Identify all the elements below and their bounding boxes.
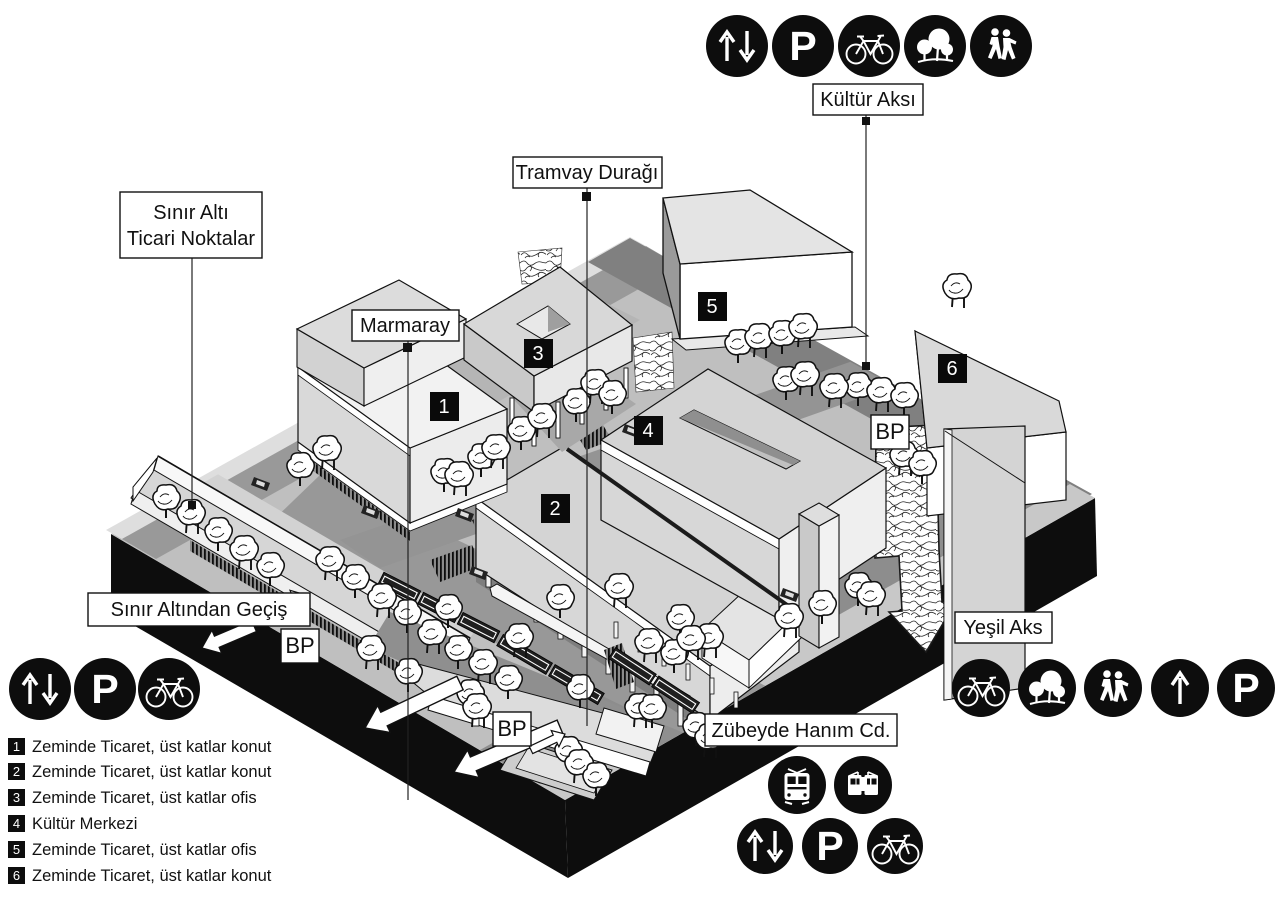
svg-text:2: 2 — [549, 498, 560, 520]
svg-text:Sınır Altı: Sınır Altı — [153, 202, 229, 224]
svg-text:BP: BP — [875, 419, 904, 444]
svg-text:6: 6 — [946, 358, 957, 380]
svg-text:4: 4 — [13, 816, 20, 831]
svg-text:3: 3 — [13, 790, 20, 805]
svg-text:5: 5 — [706, 296, 717, 318]
svg-text:1: 1 — [438, 396, 449, 418]
svg-text:Zeminde Ticaret, üst katlar ko: Zeminde Ticaret, üst katlar konut — [32, 867, 272, 885]
svg-text:Ticari Noktalar: Ticari Noktalar — [127, 228, 256, 250]
svg-text:Marmaray: Marmaray — [360, 315, 450, 337]
svg-text:2: 2 — [13, 764, 20, 779]
svg-text:Yeşil Aks: Yeşil Aks — [963, 617, 1042, 639]
svg-text:3: 3 — [532, 343, 543, 365]
svg-text:Zeminde Ticaret, üst katlar of: Zeminde Ticaret, üst katlar ofis — [32, 789, 257, 807]
svg-text:Zeminde Ticaret, üst katlar ko: Zeminde Ticaret, üst katlar konut — [32, 738, 272, 756]
svg-text:5: 5 — [13, 842, 20, 857]
svg-text:Kültür Aksı: Kültür Aksı — [820, 89, 916, 111]
svg-text:Kültür Merkezi: Kültür Merkezi — [32, 815, 137, 833]
svg-text:Tramvay Durağı: Tramvay Durağı — [516, 162, 659, 184]
svg-text:Sınır Altından Geçiş: Sınır Altından Geçiş — [111, 599, 288, 621]
svg-text:Zübeyde Hanım Cd.: Zübeyde Hanım Cd. — [712, 720, 891, 742]
svg-text:Zeminde Ticaret, üst katlar of: Zeminde Ticaret, üst katlar ofis — [32, 841, 257, 859]
svg-text:6: 6 — [13, 868, 20, 883]
svg-text:4: 4 — [642, 420, 653, 442]
svg-text:1: 1 — [13, 739, 20, 754]
svg-text:BP: BP — [285, 633, 314, 658]
svg-text:Zeminde Ticaret, üst katlar ko: Zeminde Ticaret, üst katlar konut — [32, 763, 272, 781]
svg-text:BP: BP — [497, 716, 526, 741]
